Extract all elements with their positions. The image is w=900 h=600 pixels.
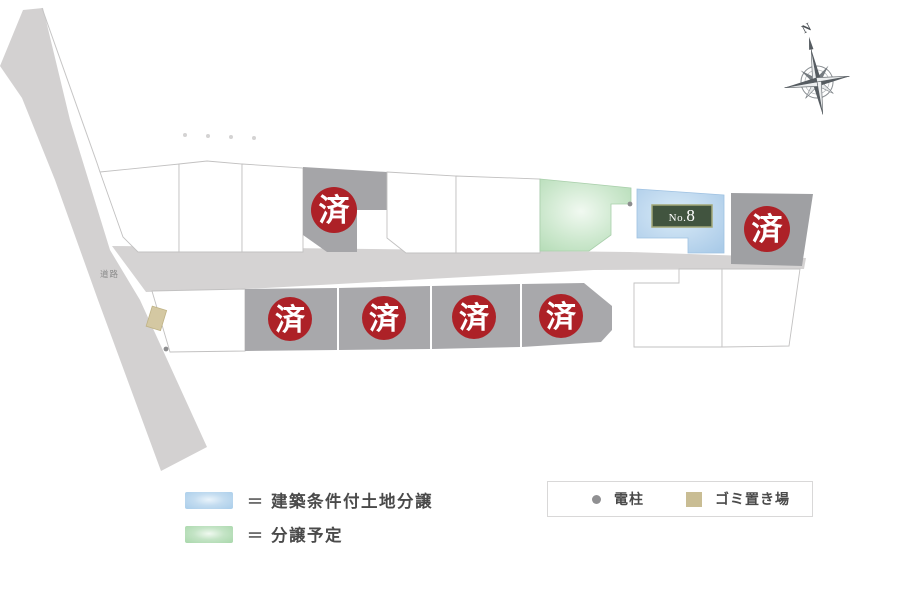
lot-bottomright-1	[634, 269, 722, 347]
lot-top-4	[387, 172, 456, 253]
legend-label-conditional: 建築条件付土地分譲	[271, 488, 433, 512]
green-swatch-icon	[185, 526, 233, 543]
svg-text:済: 済	[459, 302, 490, 335]
legend-markers-box: 電柱 ゴミ置き場	[547, 481, 813, 517]
blue-swatch-icon	[185, 492, 233, 509]
svg-text:済: 済	[546, 301, 577, 334]
lot-top-1	[100, 164, 179, 252]
pole-dot-bottom	[164, 347, 169, 352]
legend-row-planned: ＝ 分譲予定	[185, 522, 433, 546]
equals-sign: ＝	[247, 488, 263, 512]
legend-row-conditional: ＝ 建築条件付土地分譲	[185, 488, 433, 512]
garbage-area-icon	[686, 492, 702, 507]
legend-label-planned: 分譲予定	[271, 522, 343, 546]
svg-text:済: 済	[752, 212, 784, 247]
lot-top-5	[456, 176, 540, 253]
sold-badge: 済	[311, 187, 357, 233]
equals-sign: ＝	[247, 522, 263, 546]
sold-badge: 済	[362, 296, 406, 340]
svg-text:済: 済	[319, 193, 351, 228]
road-label: 道路	[100, 269, 119, 279]
lot-top-2	[179, 161, 242, 252]
legend-label-pole: 電柱	[614, 489, 644, 509]
pole-dots-top	[183, 133, 256, 140]
lot-planned-green	[540, 179, 631, 251]
compass-rose-icon: N	[774, 14, 856, 120]
lot-top-3	[242, 164, 303, 252]
sold-badge: 済	[452, 295, 496, 339]
sold-badge: 済	[744, 206, 790, 252]
sold-badge: 済	[539, 294, 583, 338]
lot-bottom-white	[152, 289, 245, 352]
compass-needle	[807, 36, 814, 50]
legend-lot-types: ＝ 建築条件付土地分譲 ＝ 分譲予定	[185, 488, 433, 556]
site-plan-page: 道路 No.8	[0, 0, 900, 600]
utility-pole-icon	[592, 495, 601, 504]
pole-dot-mid	[628, 202, 633, 207]
sold-badge: 済	[268, 297, 312, 341]
lot-bottomright-2	[722, 269, 800, 347]
svg-text:済: 済	[275, 304, 306, 337]
compass-north-label: N	[799, 20, 814, 37]
svg-text:済: 済	[369, 303, 400, 336]
legend-label-garbage: ゴミ置き場	[715, 489, 790, 509]
